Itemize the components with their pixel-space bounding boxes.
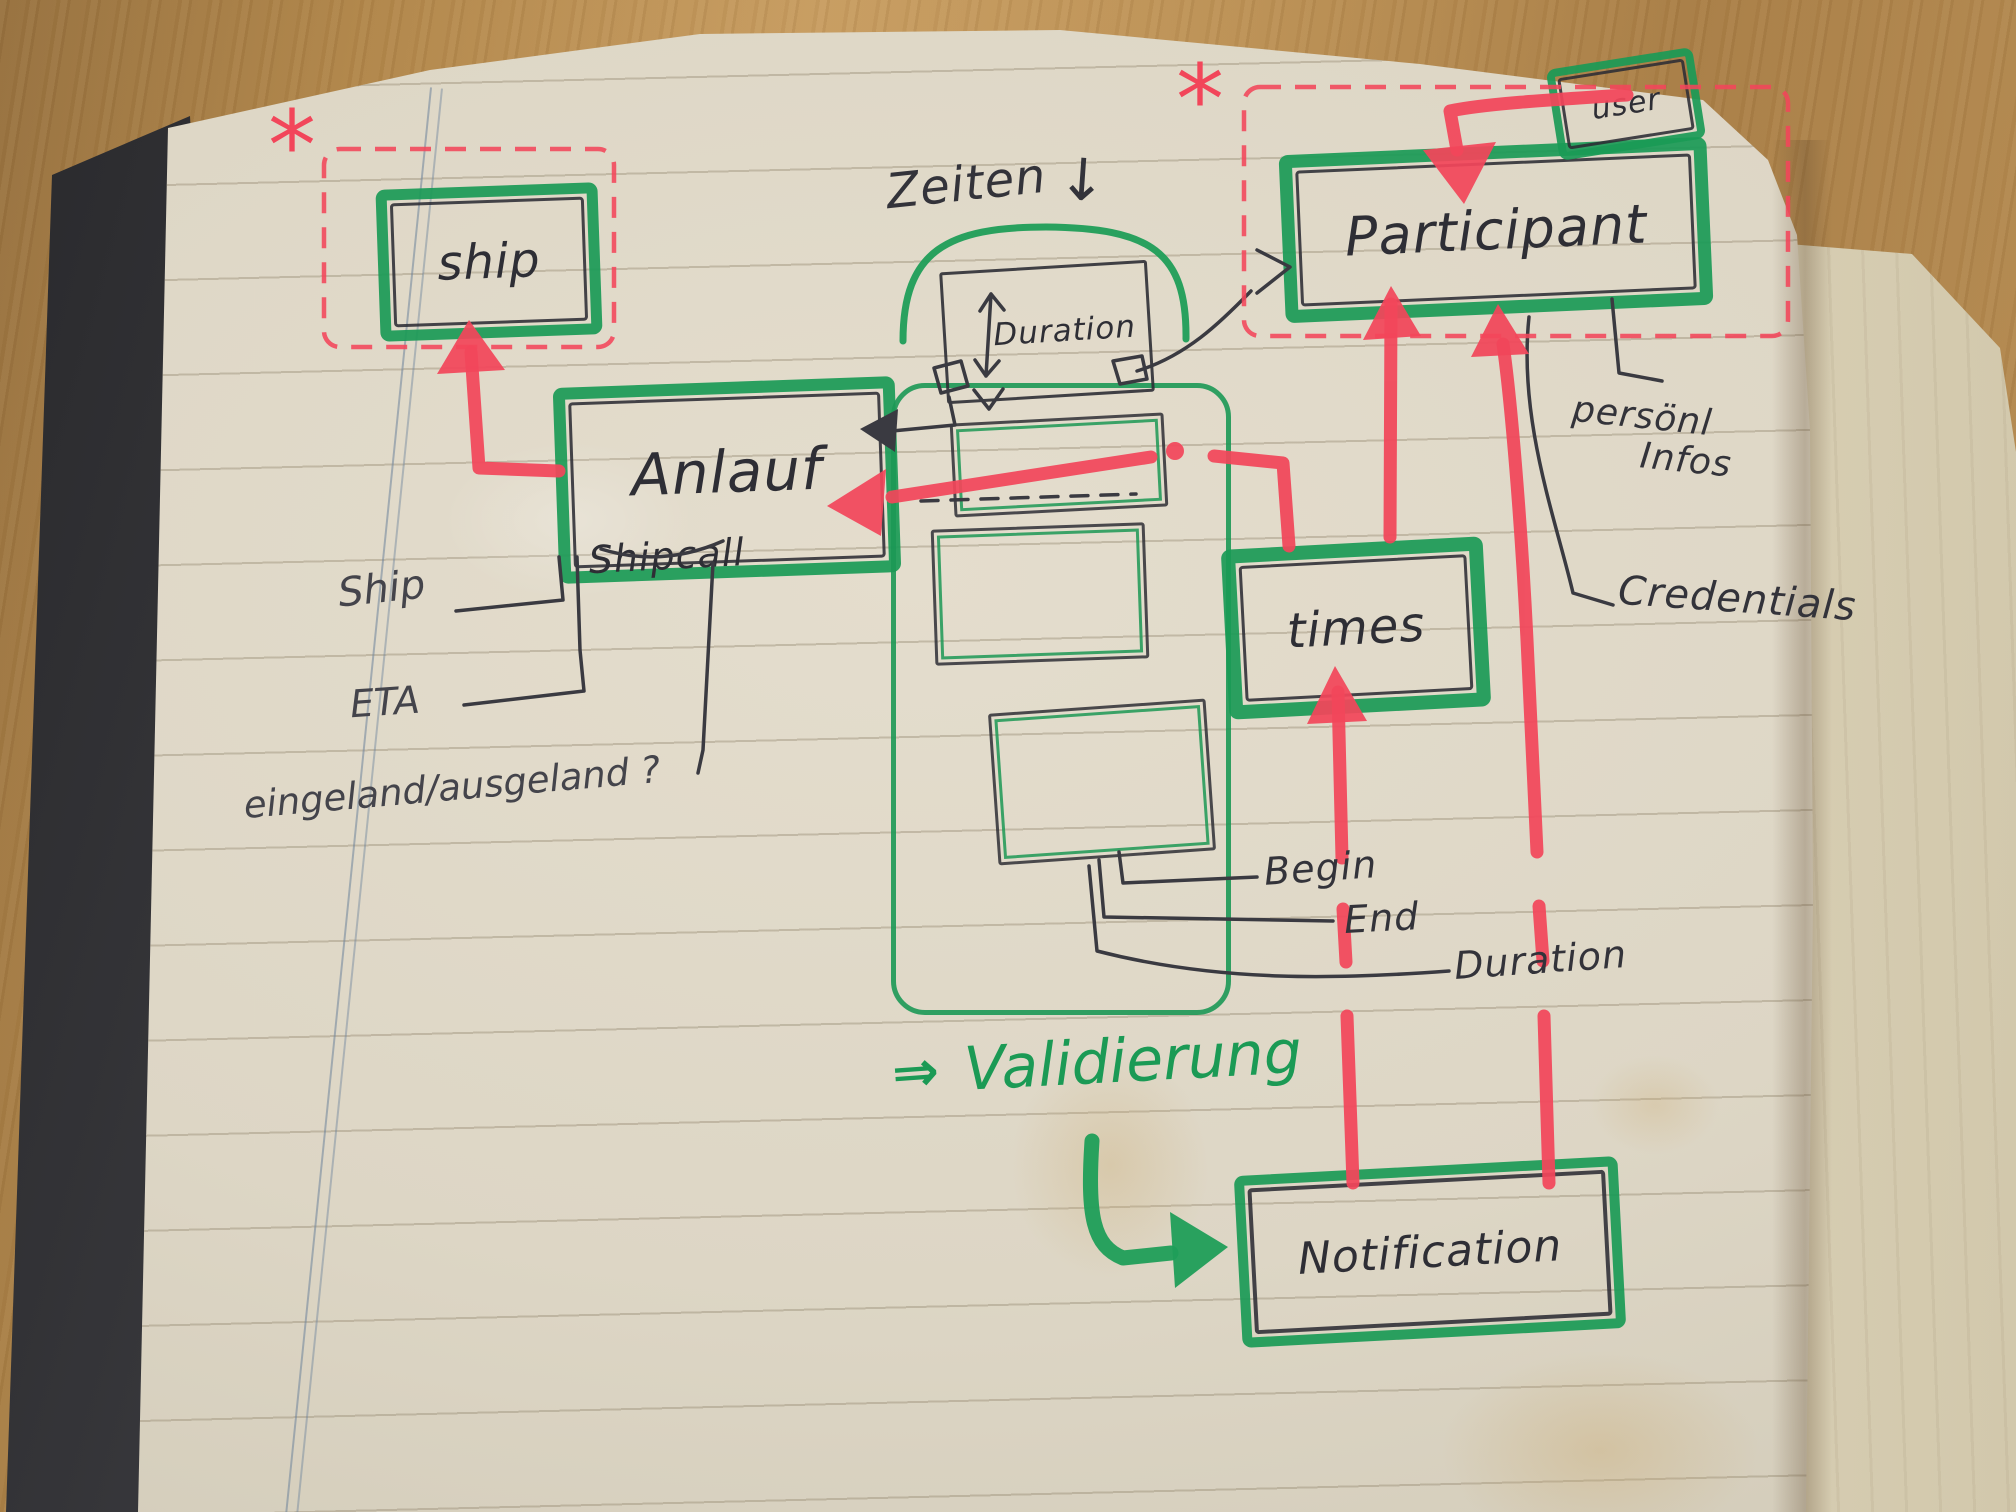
zeiten-row-2: [931, 522, 1150, 665]
notebook-photo: ship Participant user Anlauf Shipcall Du…: [0, 0, 2016, 1512]
entity-label-ship: ship: [436, 232, 541, 292]
entity-box-participant: Participant: [1279, 137, 1714, 324]
attribute-eta: ETA: [349, 678, 422, 727]
zeiten-row-3: [988, 699, 1216, 866]
entity-box-notification: Notification: [1234, 1156, 1626, 1348]
page-edge-shadow: [1772, 140, 1832, 1512]
coffee-stain: [1590, 1055, 1720, 1155]
entity-box-times: times: [1221, 536, 1492, 719]
duration-box: Duration: [939, 260, 1155, 404]
entity-box-anlauf: Anlauf Shipcall: [553, 376, 902, 584]
attribute-begin: Begin: [1263, 842, 1379, 894]
entity-label-times: times: [1285, 596, 1426, 659]
entity-label-anlauf: Anlauf: [630, 435, 824, 510]
validation-implies-arrow-icon: ⇒: [890, 1038, 941, 1106]
asterisk-participant-icon: *: [1176, 72, 1224, 130]
asterisk-ship-icon: *: [268, 118, 316, 176]
entity-label-participant: Participant: [1344, 192, 1649, 268]
entity-box-ship: ship: [375, 182, 602, 342]
attribute-ship: Ship: [336, 562, 428, 617]
duration-box-label: Duration: [992, 309, 1137, 354]
zeiten-down-arrow-icon: ↓: [1056, 144, 1110, 215]
zeiten-row-1: [950, 412, 1169, 517]
entity-sublabel-shipcall: Shipcall: [588, 530, 746, 582]
attribute-end: End: [1343, 894, 1420, 942]
